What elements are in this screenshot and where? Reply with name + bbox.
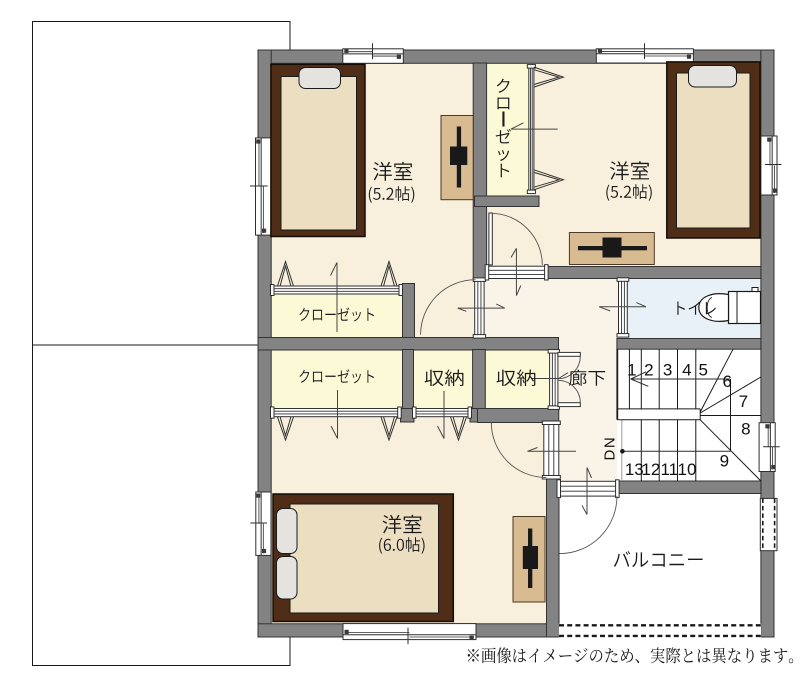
svg-text:13: 13 bbox=[625, 460, 644, 479]
svg-text:12: 12 bbox=[641, 460, 660, 479]
svg-text:8: 8 bbox=[741, 420, 750, 439]
svg-text:1: 1 bbox=[627, 360, 636, 379]
svg-text:7: 7 bbox=[739, 392, 748, 411]
svg-text:5: 5 bbox=[698, 360, 707, 379]
svg-text:6: 6 bbox=[722, 372, 731, 391]
svg-text:10: 10 bbox=[678, 460, 697, 479]
svg-text:DN: DN bbox=[602, 436, 619, 461]
svg-text:3: 3 bbox=[663, 360, 672, 379]
svg-text:4: 4 bbox=[682, 360, 691, 379]
svg-text:11: 11 bbox=[660, 460, 678, 479]
svg-text:2: 2 bbox=[644, 360, 653, 379]
svg-text:9: 9 bbox=[720, 451, 729, 470]
